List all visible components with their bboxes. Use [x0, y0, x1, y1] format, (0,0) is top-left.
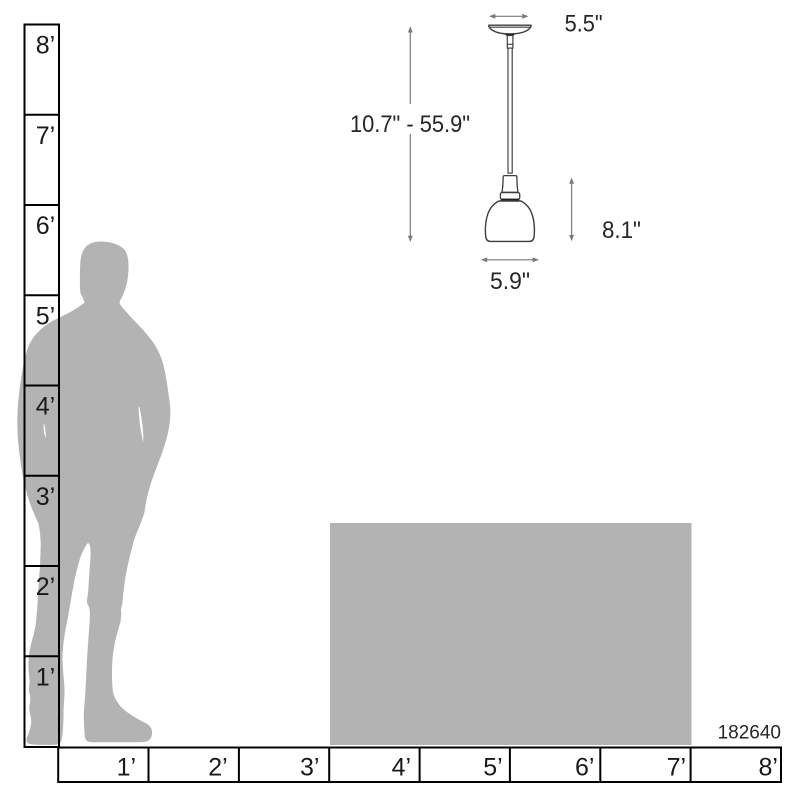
svg-text:182640: 182640 — [718, 723, 781, 744]
svg-text:3’: 3’ — [300, 754, 319, 782]
svg-text:2’: 2’ — [208, 754, 227, 782]
svg-text:5’: 5’ — [36, 302, 55, 330]
svg-text:1’: 1’ — [117, 754, 136, 782]
svg-text:5’: 5’ — [483, 754, 502, 782]
svg-text:6’: 6’ — [575, 754, 594, 782]
svg-text:8’: 8’ — [758, 754, 777, 782]
svg-text:5.5": 5.5" — [565, 10, 603, 37]
svg-text:5.9": 5.9" — [490, 268, 530, 295]
svg-text:3’: 3’ — [36, 483, 55, 511]
svg-text:10.7" - 55.9": 10.7" - 55.9" — [350, 111, 470, 138]
svg-text:8’: 8’ — [36, 32, 55, 60]
svg-text:4’: 4’ — [392, 754, 411, 782]
svg-text:8.1": 8.1" — [602, 217, 641, 244]
svg-text:7’: 7’ — [667, 754, 686, 782]
svg-text:7’: 7’ — [36, 122, 55, 150]
svg-text:4’: 4’ — [36, 393, 55, 421]
svg-text:2’: 2’ — [36, 573, 55, 601]
svg-text:6’: 6’ — [36, 212, 55, 240]
svg-text:1’: 1’ — [36, 663, 55, 691]
